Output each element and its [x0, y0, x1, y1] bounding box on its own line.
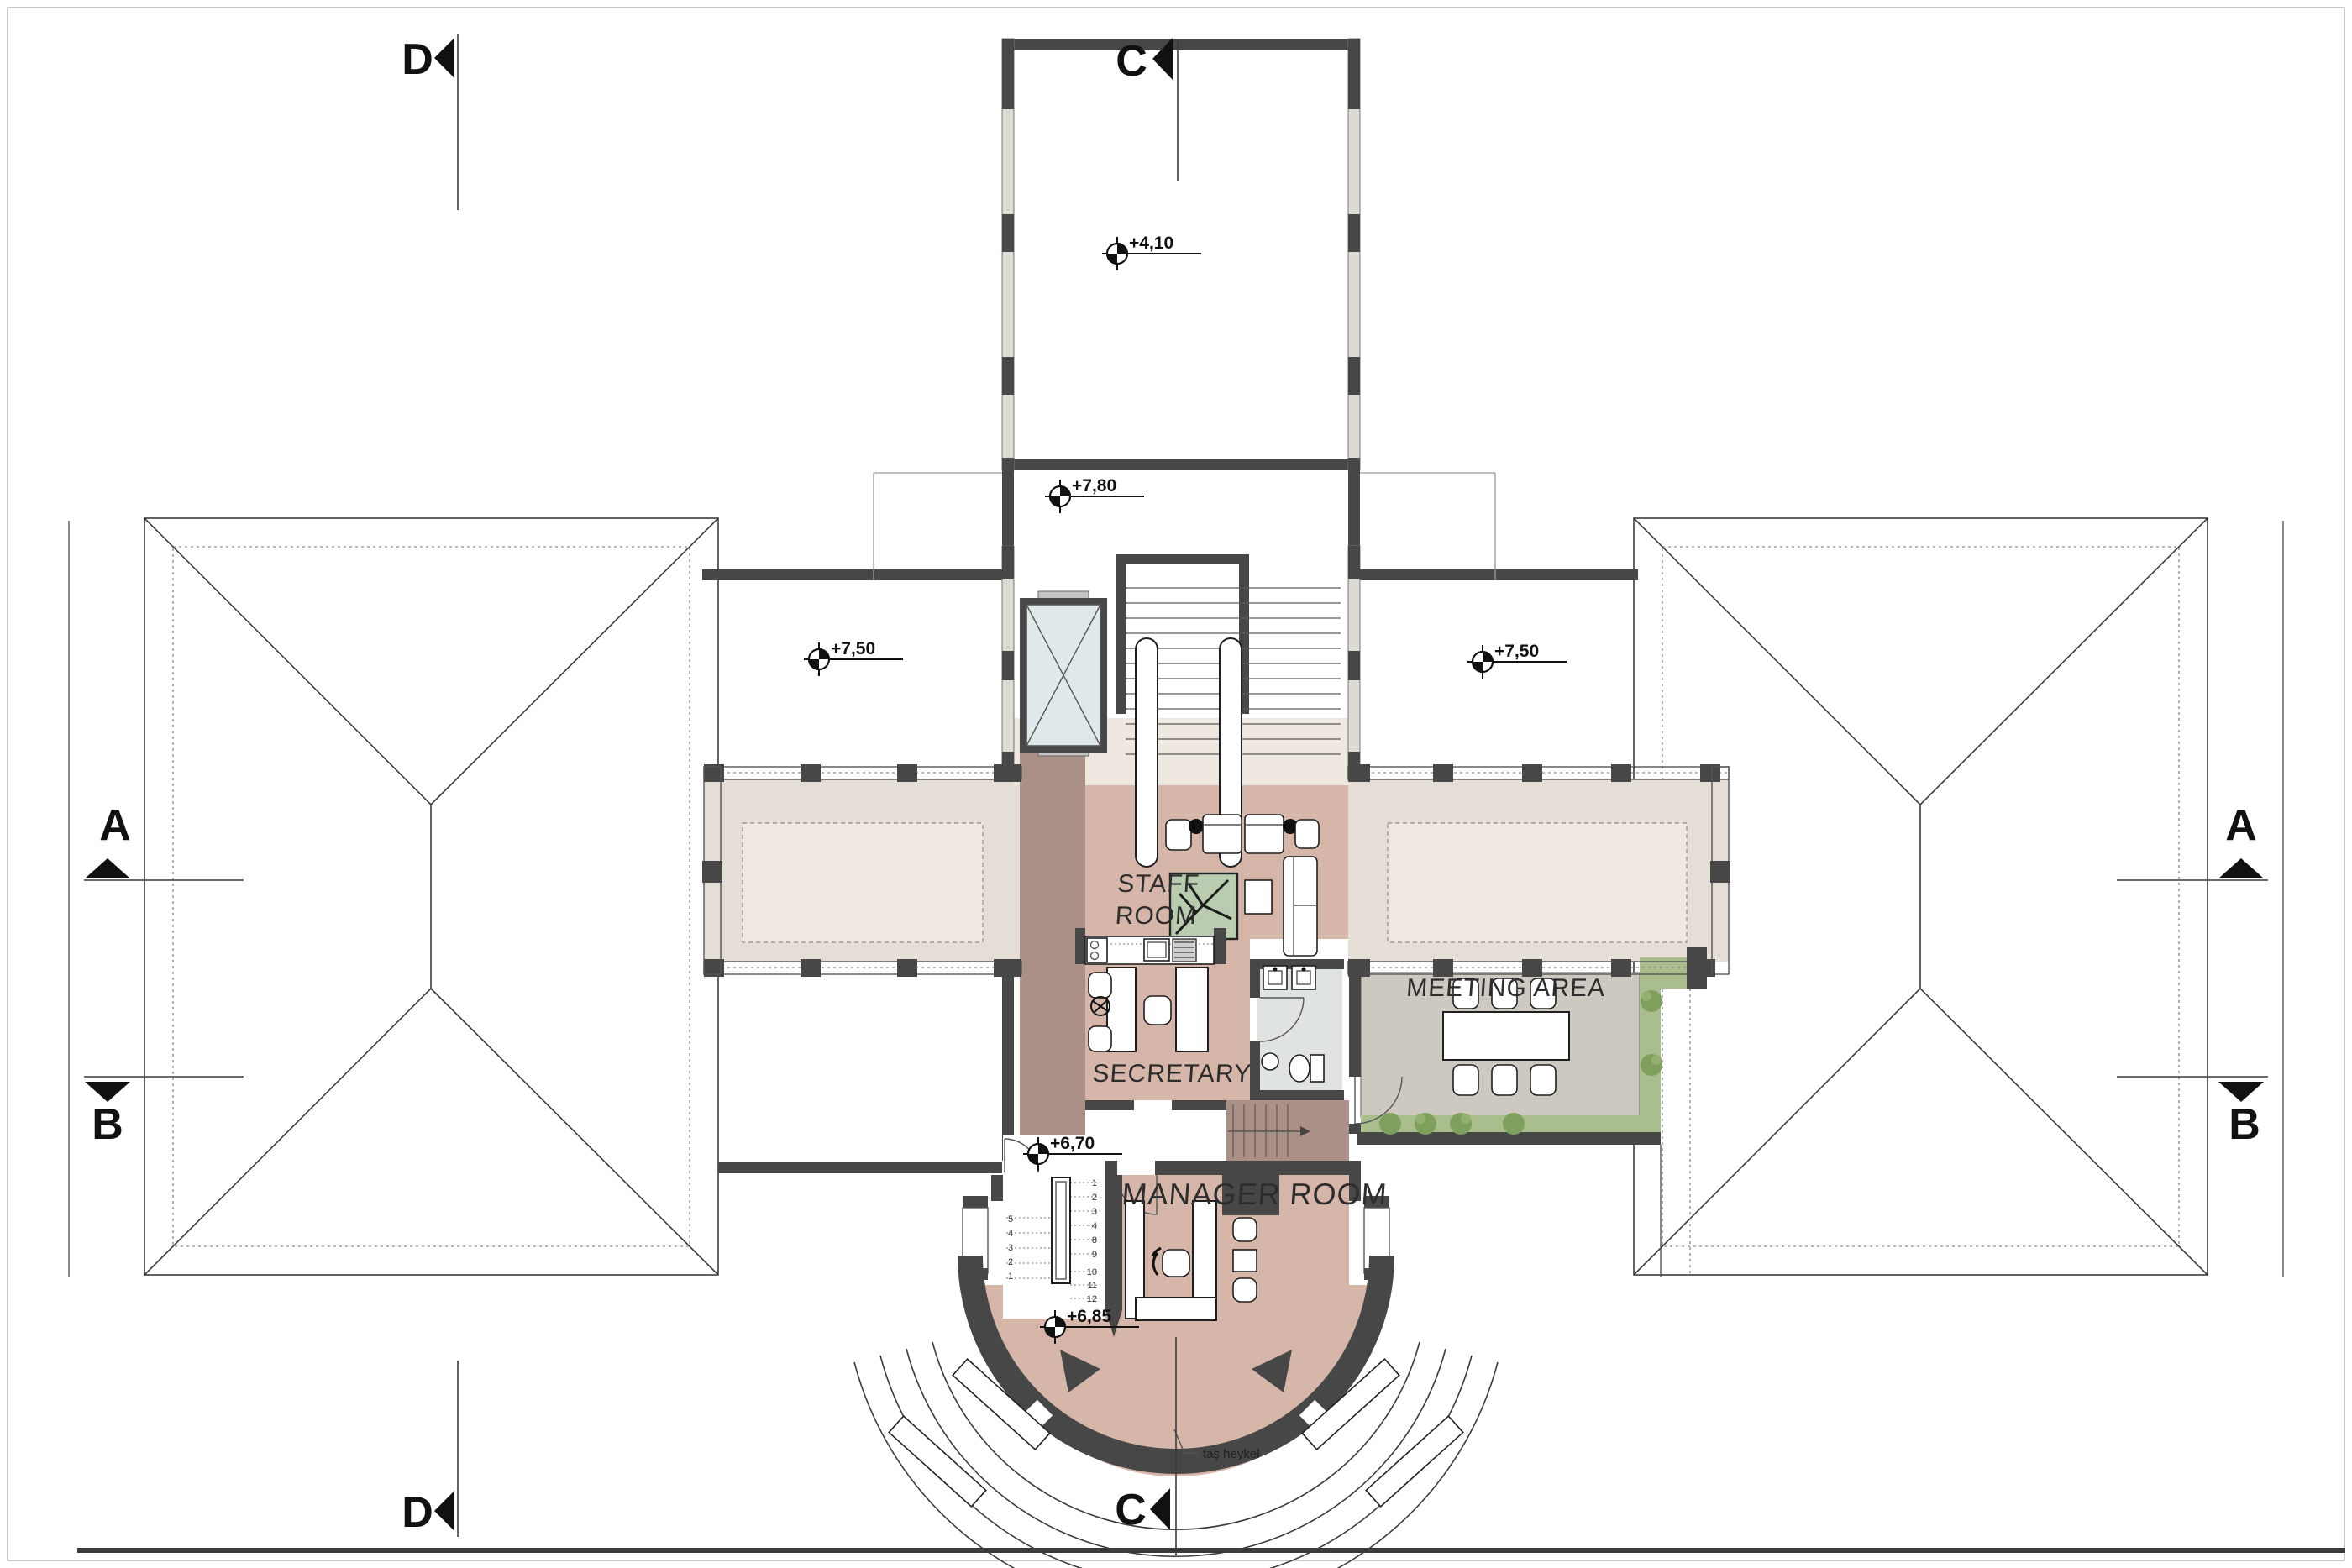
label-secretary: SECRETARY: [1091, 1060, 1252, 1088]
svg-text:1: 1: [1008, 1272, 1013, 1282]
label-meeting-area: MEETING AREA: [1405, 974, 1606, 1002]
svg-text:8: 8: [1092, 1235, 1097, 1245]
elevator: [1020, 591, 1107, 756]
svg-text:10: 10: [1087, 1267, 1097, 1277]
svg-text:3: 3: [1008, 1243, 1013, 1253]
section-label-d-bottom: D: [402, 1488, 433, 1537]
svg-text:12: 12: [1087, 1294, 1097, 1304]
svg-text:11: 11: [1088, 1281, 1097, 1291]
sheet-bottom-rule: [77, 1548, 2345, 1553]
section-label-a-right: A: [2225, 801, 2257, 850]
elevation-stair-lower: +6,85: [1067, 1307, 1111, 1326]
svg-text:2: 2: [1092, 1193, 1097, 1203]
plan-drawing: D D C C A B A: [0, 0, 2352, 1568]
svg-text:4: 4: [1008, 1229, 1013, 1239]
left-roof-plan: [144, 518, 718, 1275]
section-label-c-bottom: C: [1115, 1486, 1147, 1534]
svg-text:5: 5: [1008, 1214, 1013, 1225]
section-label-c-top: C: [1116, 37, 1147, 86]
section-label-b-left: B: [92, 1100, 123, 1149]
svg-text:9: 9: [1092, 1250, 1097, 1260]
floor-plan-sheet: D D C C A B A: [0, 0, 2352, 1568]
elevation-stair-upper: +6,70: [1050, 1134, 1095, 1153]
label-statue: taş heykel: [1203, 1447, 1260, 1461]
elevation-left-wing: +7,50: [831, 639, 875, 658]
elevation-hall: +7,80: [1072, 476, 1116, 496]
svg-text:4: 4: [1092, 1221, 1097, 1231]
elevation-tower: +4,10: [1129, 233, 1173, 253]
svg-text:2: 2: [1008, 1257, 1013, 1267]
label-staff-room-1: STAFF: [1116, 870, 1200, 898]
section-label-b-right: B: [2229, 1100, 2260, 1149]
label-manager-room: MANAGER ROOM: [1121, 1177, 1389, 1211]
svg-text:3: 3: [1092, 1207, 1097, 1217]
svg-text:1: 1: [1092, 1178, 1097, 1188]
label-staff-room-2: ROOM: [1115, 902, 1199, 930]
elevation-right-wing: +7,50: [1494, 642, 1539, 661]
section-label-a-left: A: [99, 801, 131, 850]
section-label-d-top: D: [402, 35, 433, 84]
